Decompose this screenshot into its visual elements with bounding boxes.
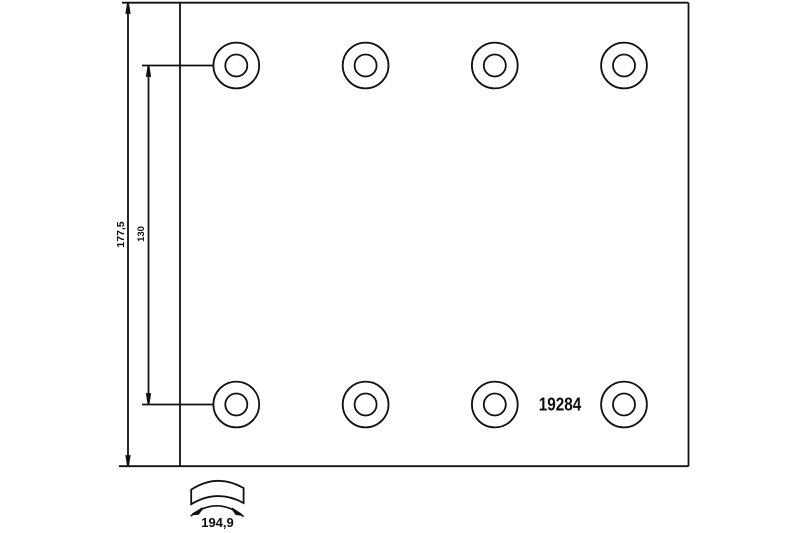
svg-text:130: 130 [136,226,147,242]
svg-text:194,9: 194,9 [201,515,234,530]
svg-text:177,5: 177,5 [115,221,127,247]
svg-text:19284: 19284 [539,395,582,415]
